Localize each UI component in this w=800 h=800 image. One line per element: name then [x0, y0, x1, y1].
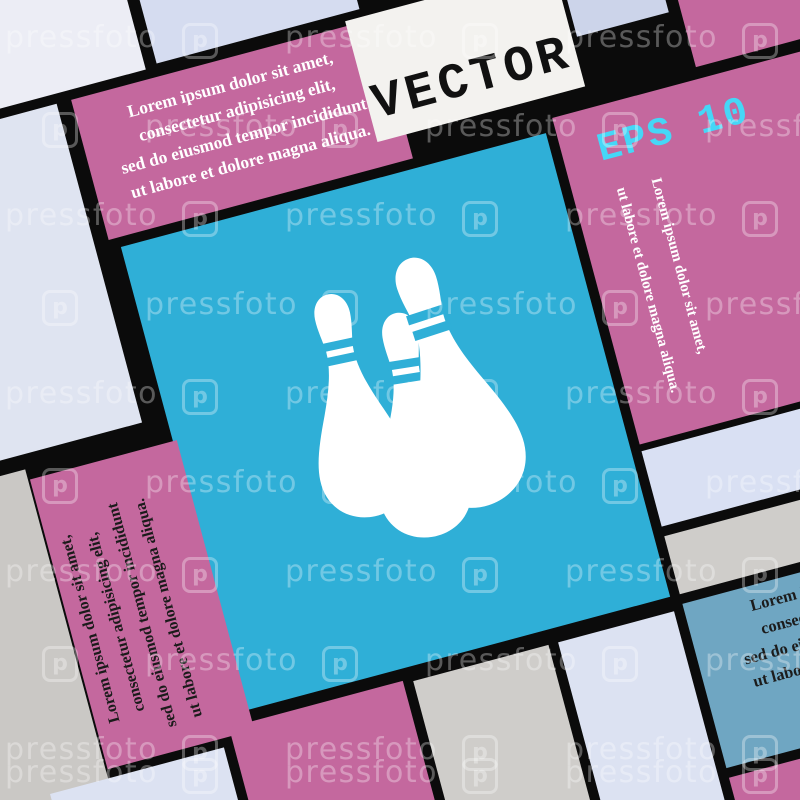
stock-image-preview: Lorem ipsum dolor sit amet, consectetur …: [0, 0, 800, 800]
tiled-mosaic-background: Lorem ipsum dolor sit amet, consectetur …: [0, 0, 800, 800]
tile-white-vector-label: VECTOR: [345, 0, 585, 142]
vector-title: VECTOR: [361, 25, 583, 136]
vertical-lorem-right: Lorem ipsum dolor sit amet, ut labore et…: [603, 174, 761, 445]
eps-10-badge: EPS 10: [593, 90, 755, 174]
